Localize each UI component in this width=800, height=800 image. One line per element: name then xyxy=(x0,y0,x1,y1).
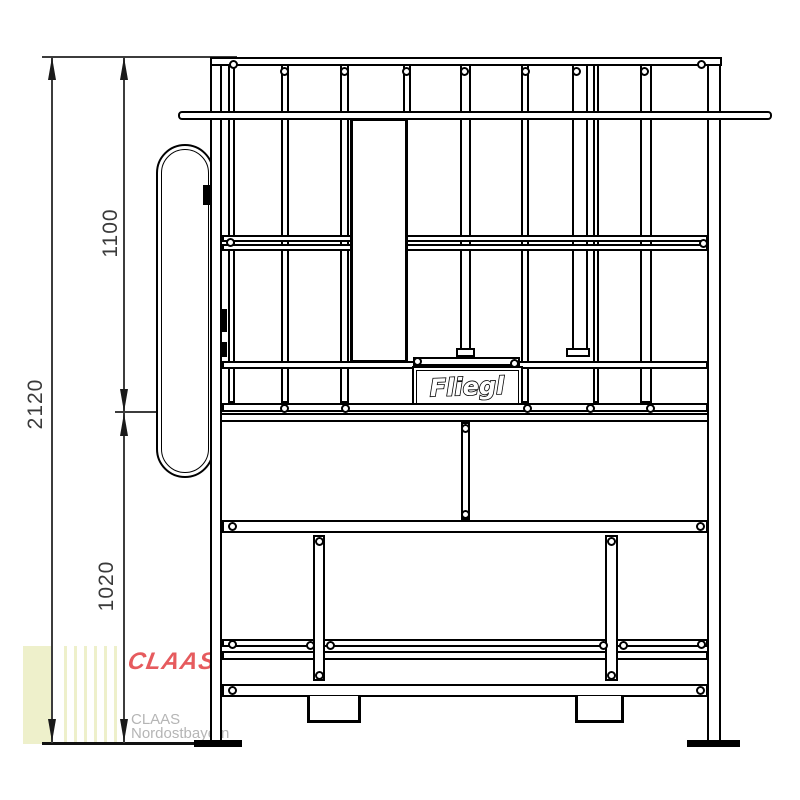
bolt-icon xyxy=(229,60,238,69)
bolt-icon xyxy=(280,67,289,76)
gate-door-frame xyxy=(350,118,408,363)
grid-bottom-rail xyxy=(222,403,708,412)
bolt-icon xyxy=(572,67,581,76)
dimension-label-1100: 1100 xyxy=(99,208,123,257)
dimension-label-2120: 2120 xyxy=(24,379,48,430)
bolt-icon xyxy=(586,404,595,413)
bolt-icon xyxy=(697,640,706,649)
lower-band-rail xyxy=(222,639,708,647)
slat-end-cap xyxy=(456,348,475,357)
bolt-icon xyxy=(340,67,349,76)
bolt-icon xyxy=(315,671,324,680)
bolt-icon xyxy=(228,686,237,695)
hand-rail-inner-line xyxy=(161,149,209,473)
logo-mount-bar xyxy=(413,357,520,366)
lower-band-rail xyxy=(222,651,708,660)
fliegl-plate: Fliegl xyxy=(412,366,523,408)
bolt-icon xyxy=(523,404,532,413)
bolt-icon xyxy=(461,424,470,433)
fliegl-logo-text: Fliegl xyxy=(429,372,505,403)
bolt-icon xyxy=(599,641,608,650)
technical-drawing-canvas: CLAAS CLAAS Nordostbayern 2120 1100 1020… xyxy=(0,0,800,800)
bolt-icon xyxy=(640,67,649,76)
bolt-icon xyxy=(607,537,616,546)
bolt-icon xyxy=(315,537,324,546)
bolt-icon xyxy=(228,640,237,649)
upper-cross-rail xyxy=(222,235,708,242)
lower-strut xyxy=(605,535,618,681)
arrowhead-icon xyxy=(48,57,56,80)
bolt-icon xyxy=(326,641,335,650)
extension-line-top xyxy=(42,56,237,58)
box-top-rail xyxy=(220,413,710,422)
arrowhead-icon xyxy=(120,57,128,80)
claas-watermark-stripes xyxy=(64,646,119,744)
bolt-icon xyxy=(228,522,237,531)
top-beam xyxy=(210,57,722,66)
claas-watermark-block xyxy=(23,646,51,744)
arrowhead-icon xyxy=(120,719,128,742)
foot-plate xyxy=(194,740,242,747)
left-post xyxy=(210,57,222,742)
bolt-icon xyxy=(341,404,350,413)
bolt-icon xyxy=(521,67,530,76)
panel-divider xyxy=(461,422,470,520)
fliegl-logo: Fliegl xyxy=(416,370,519,404)
foot-plate xyxy=(687,740,740,747)
bolt-icon xyxy=(646,404,655,413)
bolt-icon xyxy=(619,641,628,650)
right-post xyxy=(707,57,721,742)
bolt-icon xyxy=(461,510,470,519)
upper-cross-rail xyxy=(222,244,708,251)
arrowhead-icon xyxy=(48,719,56,742)
dimension-line-total xyxy=(51,57,53,743)
bolt-icon xyxy=(280,404,289,413)
bolt-icon xyxy=(413,357,422,366)
bolt-icon xyxy=(696,686,705,695)
bolt-icon xyxy=(306,641,315,650)
bolt-icon xyxy=(607,671,616,680)
bolt-icon xyxy=(510,359,519,368)
arrowhead-icon xyxy=(120,389,128,412)
slat-end-cap xyxy=(566,348,590,357)
lower-cross-rail xyxy=(222,520,708,533)
fork-pocket xyxy=(307,696,361,723)
dimension-label-1020: 1020 xyxy=(95,561,119,612)
bolt-icon xyxy=(226,238,235,247)
bolt-icon xyxy=(402,67,411,76)
grid-slat-wide xyxy=(572,64,588,357)
grid-slat-center xyxy=(460,64,471,357)
lower-strut xyxy=(313,535,325,681)
fork-pocket xyxy=(575,696,624,723)
bolt-icon xyxy=(696,522,705,531)
carry-pole xyxy=(178,111,772,120)
bolt-icon xyxy=(699,239,708,248)
arrowhead-icon xyxy=(120,413,128,436)
bolt-icon xyxy=(697,60,706,69)
base-rail xyxy=(222,684,708,697)
claas-logo-text: CLAAS xyxy=(126,648,219,676)
bolt-icon xyxy=(460,67,469,76)
